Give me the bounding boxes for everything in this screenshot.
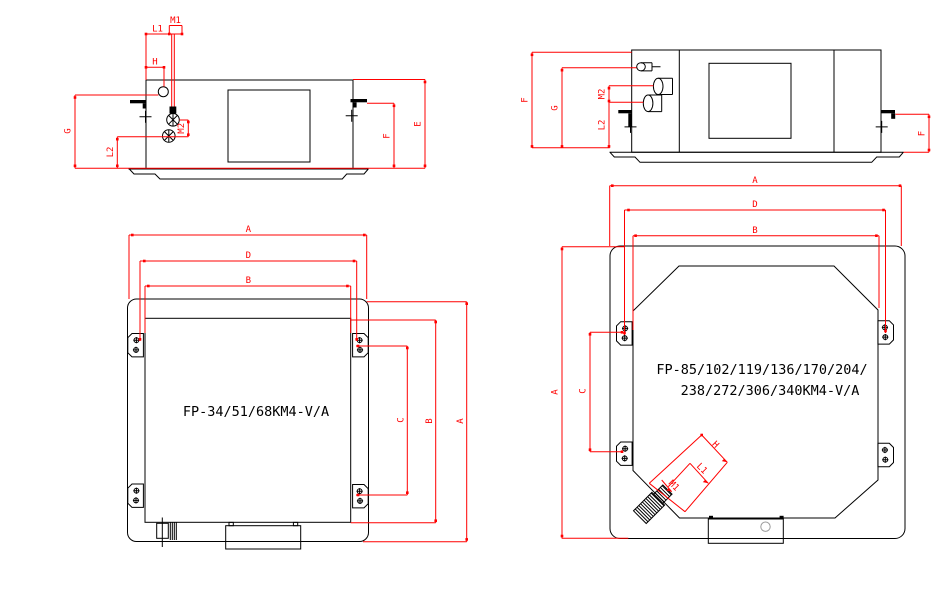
- mounting-bracket: [353, 485, 369, 508]
- water-inlet-fitting-body: [648, 95, 662, 112]
- dim-label-a-side: A: [456, 418, 466, 424]
- dim-arrow: [722, 459, 728, 463]
- water-inlet-hatch: [164, 130, 173, 143]
- drain-pan-tab: [229, 522, 233, 525]
- drain-pan-box: [708, 519, 783, 543]
- dim-label-l2: L2: [598, 120, 608, 131]
- dim-label-b-side: B: [425, 418, 435, 423]
- drain-pan-tab: [709, 516, 713, 519]
- model-label-large-unit-line2: 238/272/306/340KM4-V/A: [681, 383, 860, 399]
- dim-label-c-side: C: [397, 417, 407, 422]
- hanger-bracket-right-leg: [353, 102, 356, 107]
- dim-label-m1: M1: [170, 16, 181, 26]
- dim-label-h: H: [152, 58, 157, 68]
- center-mark-right: [346, 110, 358, 122]
- dim-label-a-side: A: [551, 389, 561, 395]
- pipe-thread-stub: [170, 107, 177, 114]
- large-unit-side-view: F G M2 L2 F: [521, 50, 931, 162]
- hanger-bracket-left-leg: [143, 103, 146, 108]
- dim-label-l2: L2: [106, 147, 116, 158]
- water-inlet-fitting: [643, 95, 653, 112]
- mounting-bracket: [878, 443, 894, 466]
- mounting-bracket: [128, 484, 144, 507]
- mounting-bracket: [617, 442, 633, 465]
- cad-drawing-canvas: L1 M1 H G L2 M2 F E F G M2 L2 F: [0, 0, 951, 594]
- drain-pan-box: [226, 526, 301, 549]
- small-unit-side-view: L1 M1 H G L2 M2 F E: [64, 16, 427, 179]
- dim-label-g: G: [64, 128, 74, 133]
- dim-label-b-top: B: [246, 276, 251, 286]
- center-mark-left: [140, 111, 152, 123]
- mounting-bracket: [353, 334, 369, 357]
- large-unit-plan-view: FP-85/102/119/136/170/204/ 238/272/306/3…: [551, 176, 906, 543]
- ceiling-panel-profile: [610, 152, 904, 162]
- decorative-panel-outline: [128, 299, 369, 542]
- drain-pan-tab: [293, 522, 297, 525]
- unit-body-outline: [632, 50, 881, 152]
- water-outlet-fitting: [653, 78, 663, 94]
- hanger-bracket-right-leg: [891, 113, 895, 119]
- drain-pan-tab: [780, 516, 784, 519]
- model-label-large-unit-line1: FP-85/102/119/136/170/204/: [656, 362, 867, 378]
- dim-label-a-top: A: [752, 176, 758, 186]
- fan-coil-dimension-drawing: L1 M1 H G L2 M2 F E F G M2 L2 F: [0, 0, 951, 594]
- dim-label-h-rotated: H: [709, 440, 720, 451]
- access-panel: [709, 63, 791, 138]
- dim-label-m2: M2: [177, 123, 187, 134]
- center-mark-right: [876, 121, 888, 133]
- access-panel: [228, 90, 310, 162]
- dim-label-f-right: F: [918, 131, 928, 136]
- dim-label-l1: L1: [152, 25, 163, 35]
- hanger-bracket-right: [351, 99, 368, 102]
- air-vent-port: [158, 87, 168, 97]
- hanger-bracket-left: [618, 110, 632, 113]
- air-vent-fitting: [637, 63, 646, 71]
- dimension-lines: [532, 52, 929, 152]
- dim-label-f: F: [383, 133, 393, 138]
- dim-label-b-top: B: [752, 226, 757, 236]
- hanger-bracket-left: [130, 100, 146, 103]
- hanger-bracket-right: [881, 110, 895, 113]
- mounting-bracket: [128, 334, 144, 357]
- dim-label-l1-rotated: L1: [694, 462, 709, 477]
- dimension-lines: [129, 235, 467, 542]
- dim-label-m2: M2: [598, 89, 608, 100]
- model-label-small-unit: FP-34/51/68KM4-V/A: [183, 404, 329, 420]
- dim-label-c-side: C: [579, 388, 589, 393]
- dim-label-e: E: [414, 121, 424, 126]
- water-outlet-fitting-body: [658, 78, 672, 94]
- dim-label-a-top: A: [246, 225, 252, 235]
- ceiling-panel-profile: [129, 169, 369, 179]
- center-mark-left: [625, 121, 637, 133]
- dim-label-d: D: [246, 251, 251, 261]
- unit-body-outline: [145, 318, 351, 522]
- dim-label-d: D: [752, 200, 757, 210]
- dimension-lines: [75, 26, 425, 169]
- small-unit-plan-view: FP-34/51/68KM4-V/A A D B C B A: [128, 225, 469, 549]
- dim-label-g: G: [551, 105, 561, 110]
- drain-outlet-circle: [761, 522, 770, 531]
- dim-label-f-left: F: [521, 97, 531, 102]
- dim-arrow: [703, 480, 709, 484]
